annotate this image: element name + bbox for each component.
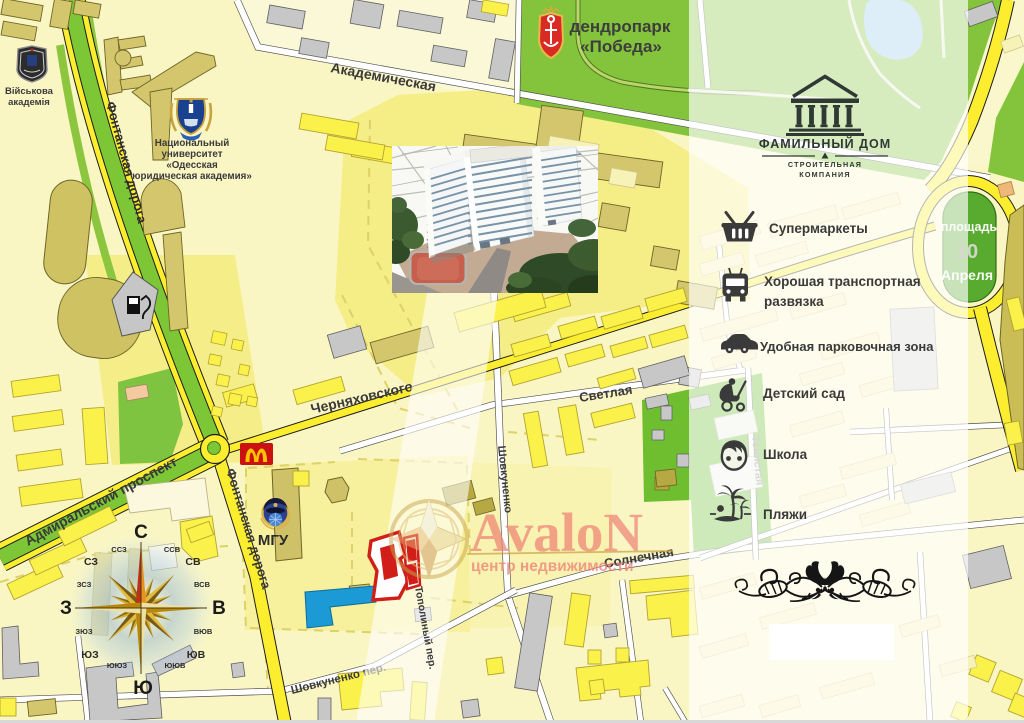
svg-text:ЮЮВ: ЮЮВ — [165, 661, 186, 670]
svg-text:ФАМИЛЬНЫЙ ДОМ: ФАМИЛЬНЫЙ ДОМ — [759, 136, 891, 151]
svg-text:дендропарк: дендропарк — [570, 17, 671, 36]
svg-text:ЮЮЗ: ЮЮЗ — [107, 661, 127, 670]
svg-text:университет: университет — [161, 149, 222, 160]
svg-text:центр недвижимости: центр недвижимости — [471, 558, 634, 575]
svg-text:«Победа»: «Победа» — [580, 37, 662, 56]
svg-text:Детский сад: Детский сад — [763, 386, 845, 401]
svg-text:академія: академія — [8, 97, 50, 108]
svg-text:Удобная парковочная зона: Удобная парковочная зона — [760, 339, 934, 354]
svg-text:В: В — [212, 598, 226, 619]
svg-text:Хорошая транспортная: Хорошая транспортная — [764, 274, 921, 289]
svg-text:ВЮВ: ВЮВ — [194, 627, 213, 636]
svg-text:Супермаркеты: Супермаркеты — [769, 221, 868, 236]
svg-text:Национальный: Национальный — [155, 138, 229, 149]
svg-text:площадь: площадь — [941, 220, 998, 234]
svg-text:СТРОИТЕЛЬНАЯ: СТРОИТЕЛЬНАЯ — [788, 160, 862, 169]
svg-text:З: З — [60, 598, 72, 619]
svg-text:С: С — [134, 522, 148, 543]
svg-text:СЗ: СЗ — [84, 556, 98, 568]
svg-text:ССЗ: ССЗ — [111, 545, 127, 554]
svg-text:ЮЗ: ЮЗ — [81, 649, 99, 661]
svg-text:Школа: Школа — [763, 447, 808, 462]
svg-text:МГУ: МГУ — [258, 532, 289, 549]
svg-text:Пляжи: Пляжи — [763, 507, 807, 522]
svg-text:юридическая академия»: юридическая академия» — [132, 171, 252, 182]
svg-text:Апреля: Апреля — [941, 267, 993, 283]
svg-text:ВСВ: ВСВ — [194, 580, 211, 589]
svg-text:Військова: Військова — [5, 86, 54, 97]
svg-text:ССВ: ССВ — [164, 545, 181, 554]
svg-text:развязка: развязка — [764, 294, 824, 309]
svg-text:Ю: Ю — [133, 678, 153, 699]
svg-text:ЗЮЗ: ЗЮЗ — [75, 627, 92, 636]
svg-text:СВ: СВ — [185, 556, 201, 568]
svg-text:ЮВ: ЮВ — [187, 649, 206, 661]
svg-text:КОМПАНИЯ: КОМПАНИЯ — [799, 170, 850, 179]
svg-text:10: 10 — [956, 241, 978, 263]
svg-text:ЗСЗ: ЗСЗ — [77, 580, 92, 589]
svg-text:«Одесская: «Одесская — [166, 160, 218, 171]
